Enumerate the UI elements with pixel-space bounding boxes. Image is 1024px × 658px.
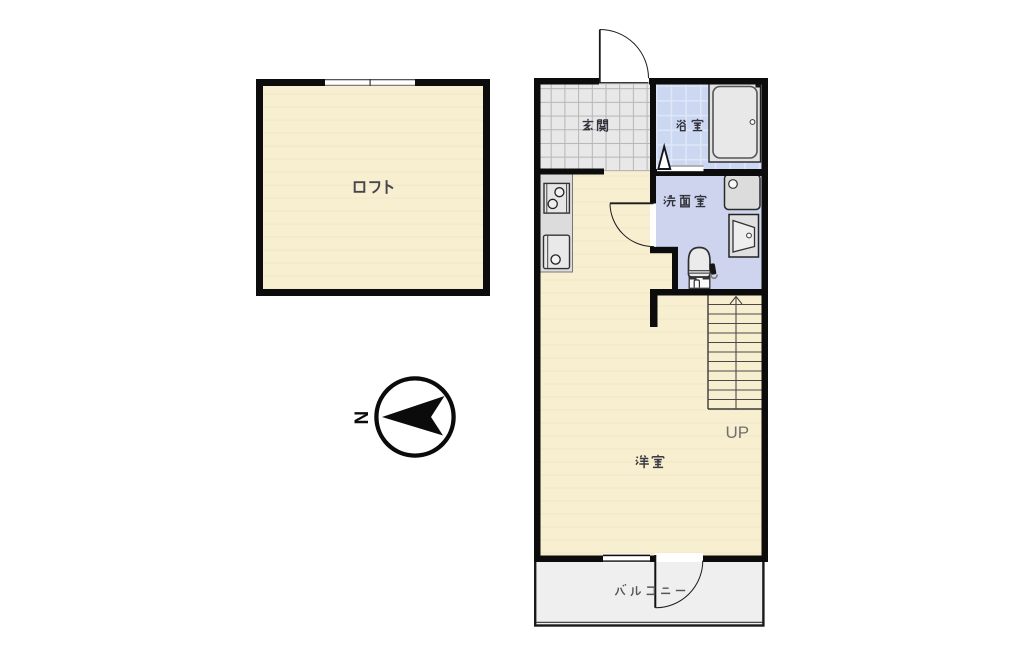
svg-text:UP: UP (726, 423, 750, 442)
svg-text:N: N (352, 411, 373, 425)
